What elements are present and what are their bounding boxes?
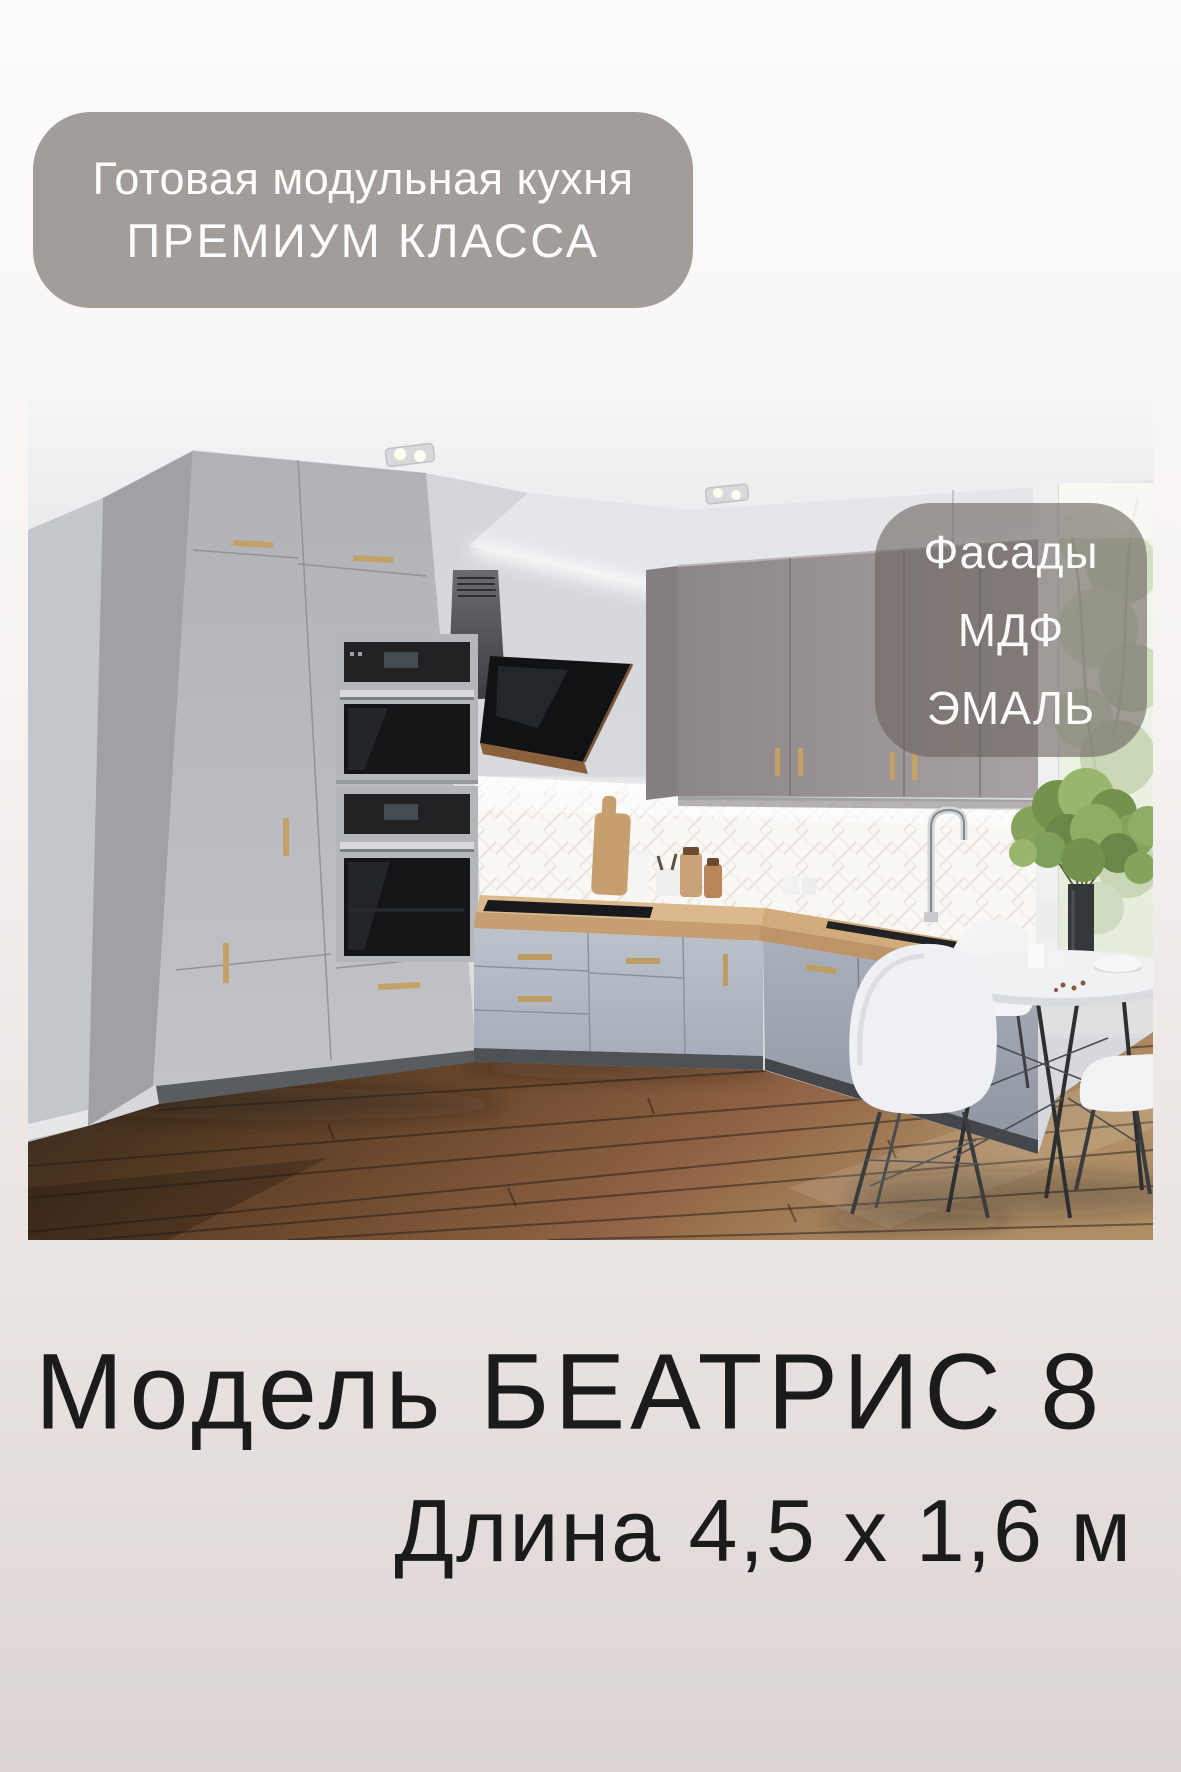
facade-badge-line3: ЭМАЛЬ: [927, 669, 1095, 747]
oven-stack: [336, 634, 478, 962]
tall-cabinets: [28, 451, 478, 1142]
facade-badge-line2: МДФ: [958, 591, 1064, 669]
facade-badge-line1: Фасады: [923, 513, 1098, 591]
dimensions-text: Длина 4,5 х 1,6 м: [394, 1480, 1133, 1582]
facade-badge: Фасады МДФ ЭМАЛЬ: [875, 503, 1147, 757]
top-badge-line2: ПРЕМИУМ КЛАССА: [126, 210, 599, 271]
ceiling-spotlight: [705, 484, 748, 504]
top-badge-line1: Готовая модульная кухня: [93, 149, 634, 210]
white-pot: [1036, 900, 1058, 940]
top-badge: Готовая модульная кухня ПРЕМИУМ КЛАССА: [33, 112, 693, 308]
model-title: Модель БЕАТРИС 8: [35, 1331, 1104, 1454]
product-card: Готовая модульная кухня ПРЕМИУМ КЛАССА: [0, 0, 1181, 1772]
